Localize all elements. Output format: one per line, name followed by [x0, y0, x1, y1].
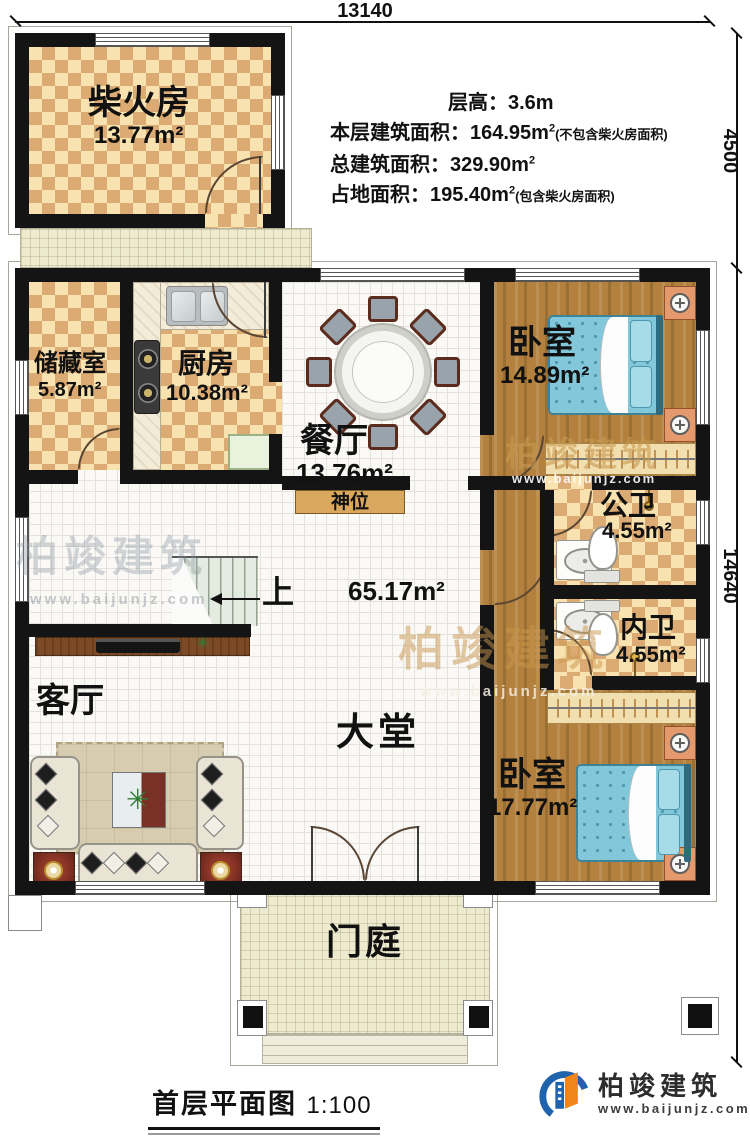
door-leaf — [417, 826, 419, 881]
drawing-title: 首层平面图 1:100 — [148, 1082, 380, 1135]
info-land-area: 占地面积：195.40m2(包含柴火房面积) — [330, 178, 615, 207]
lamp-icon — [670, 415, 690, 435]
pillow — [630, 366, 652, 408]
shrine-console: 神位 — [295, 490, 405, 514]
room-area-public-bath: 4.55m² — [602, 520, 672, 542]
pillow — [658, 814, 680, 855]
burner — [138, 383, 158, 403]
window — [515, 268, 640, 282]
room-label-ensuite-bath: 内卫 — [620, 614, 676, 642]
corner-pilaster — [8, 895, 42, 931]
wall — [263, 214, 285, 228]
hall-area: 65.17m² — [348, 578, 445, 604]
door-leaf — [311, 826, 313, 881]
logo-name: 柏竣建筑 — [598, 1072, 750, 1101]
wall — [540, 585, 710, 599]
plant-icon: ✳ — [196, 636, 209, 652]
stairs-arrow-icon — [210, 593, 222, 605]
porch-column — [243, 1006, 263, 1028]
room-label-bedroom-bottom: 卧室 — [498, 758, 566, 792]
room-label-storage: 储藏室 — [34, 352, 106, 376]
pillow — [630, 320, 652, 362]
window — [95, 33, 210, 47]
stove — [134, 340, 160, 414]
dining-table — [336, 325, 430, 419]
window — [271, 95, 285, 170]
nightstand — [664, 726, 696, 760]
wall — [15, 470, 78, 484]
bed-blanket-fold — [628, 766, 656, 860]
room-area-storage: 5.87m² — [38, 380, 101, 400]
watermark-site: www.baijunjz.com — [420, 684, 597, 699]
watermark-text: 柏竣建筑 — [505, 438, 661, 472]
headboard — [656, 315, 663, 415]
wall — [120, 470, 282, 484]
burner — [138, 349, 158, 369]
window — [535, 881, 660, 895]
door-opening — [480, 550, 494, 605]
window — [696, 500, 710, 545]
wall — [15, 33, 29, 228]
title-scale: 1:100 — [307, 1092, 372, 1119]
toilet-tank — [584, 600, 620, 612]
room-label-hall: 大堂 — [336, 714, 420, 752]
stairs-direction-line — [222, 598, 260, 600]
room-area-bedroom-top: 14.89m² — [500, 364, 589, 388]
door-leaf — [259, 156, 261, 214]
info-total-area: 总建筑面积：329.90m2 — [330, 148, 535, 177]
room-area-kitchen: 10.38m² — [166, 382, 248, 404]
window — [696, 638, 710, 683]
nightstand — [664, 286, 696, 320]
porch-column — [469, 1006, 489, 1028]
door-opening — [205, 214, 263, 228]
info-floor-height: 层高：3.6m — [448, 86, 554, 115]
lamp-icon — [670, 293, 690, 313]
dining-chair — [368, 296, 398, 322]
bed-blanket-fold — [600, 317, 628, 413]
room-label-kitchen: 厨房 — [178, 350, 234, 378]
window — [75, 881, 205, 895]
room-area-bedroom-bottom: 17.77m² — [488, 796, 577, 820]
table-lamp-icon — [44, 861, 63, 880]
dimension-width: 13140 — [320, 0, 410, 23]
wall — [120, 282, 133, 470]
wall — [15, 214, 205, 228]
info-floor-area: 本层建筑面积：164.95m2(不包含柴火房面积) — [330, 116, 668, 145]
room-label-bedroom-top: 卧室 — [508, 326, 576, 360]
room-area-dining: 13.76m² — [296, 460, 393, 486]
wall — [269, 434, 282, 484]
porch-steps — [262, 1034, 468, 1064]
stairs-up-label: 上 — [262, 576, 294, 608]
wall — [592, 676, 710, 690]
room-label-dining: 餐厅 — [300, 424, 368, 458]
table-lamp-icon — [211, 861, 230, 880]
toilet-tank — [584, 570, 620, 583]
dining-chair — [368, 424, 398, 450]
room-label-public-bath: 公卫 — [600, 492, 656, 520]
dining-table-top — [352, 341, 414, 403]
floor-plan: 13140 4500 14640 层高：3.6m 本层建筑面积：164.95m2… — [0, 0, 750, 1145]
title-underline — [148, 1133, 380, 1135]
tv — [96, 639, 180, 653]
wall — [271, 33, 285, 95]
wall — [269, 282, 282, 382]
logo-site: www.baijunjz.com — [598, 1101, 750, 1116]
dimension-height-main: 14640 — [719, 541, 741, 611]
section-marker — [688, 1004, 712, 1028]
logo-mark-icon — [538, 1068, 590, 1120]
room-label-porch: 门庭 — [326, 924, 404, 960]
pillow — [658, 769, 680, 810]
shrine-label: 神位 — [331, 492, 369, 513]
wall — [480, 490, 494, 550]
room-area-firewood: 13.77m² — [94, 124, 183, 148]
watermark-text: 柏竣建筑 — [398, 626, 610, 672]
room-area-ensuite-bath: 4.55m² — [616, 644, 686, 666]
fridge — [228, 434, 274, 470]
title-text: 首层平面图 — [152, 1089, 297, 1119]
window — [15, 360, 29, 415]
room-label-living: 客厅 — [36, 684, 104, 718]
watermark-text: 柏竣建筑 — [16, 536, 208, 578]
walkway-floor — [20, 228, 312, 268]
door-leaf — [264, 282, 266, 338]
watermark-site: www.baijunjz.com — [30, 592, 207, 607]
company-logo: 柏竣建筑 www.baijunjz.com — [538, 1068, 750, 1120]
dimension-height-upper: 4500 — [719, 123, 741, 179]
plant-icon: ✳ — [126, 786, 149, 814]
nightstand — [664, 408, 696, 442]
sink-basin — [171, 291, 196, 322]
dining-chair — [306, 357, 332, 387]
tv-feature-wall — [29, 624, 251, 637]
window — [320, 268, 465, 282]
lamp-icon — [670, 733, 690, 753]
wall — [480, 282, 494, 435]
dining-chair — [434, 357, 460, 387]
headboard — [684, 764, 691, 862]
watermark-site: www.baijunjz.com — [512, 472, 656, 485]
window — [696, 330, 710, 425]
dimension-line-right-main — [736, 268, 738, 1062]
room-label-firewood: 柴火房 — [88, 86, 190, 120]
door-opening — [480, 435, 494, 476]
